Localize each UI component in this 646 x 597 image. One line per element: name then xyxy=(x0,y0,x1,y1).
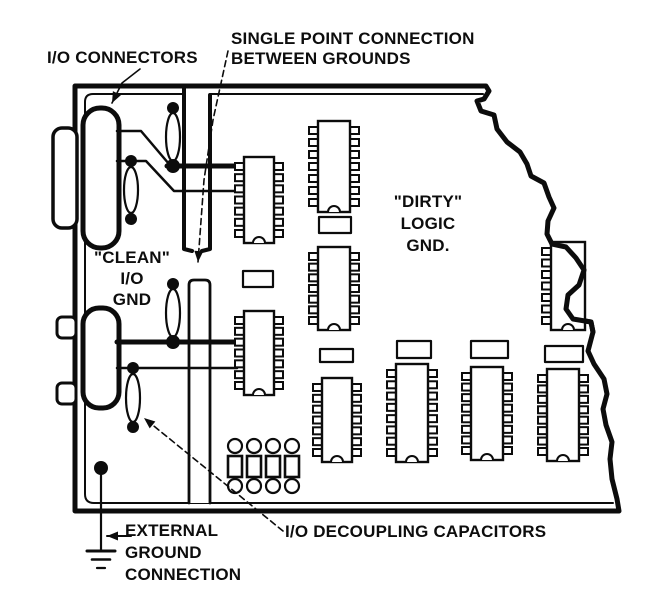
junction-dot xyxy=(166,335,180,349)
grounding-diagram: I/O CONNECTORS SINGLE POINT CONNECTION B… xyxy=(0,0,646,597)
passive-component xyxy=(243,271,273,287)
decoupling-capacitor xyxy=(247,439,261,493)
label-external-line3: CONNECTION xyxy=(125,564,241,586)
ic-logic-2 xyxy=(309,247,359,330)
io-connector-bottom-flange-upper xyxy=(57,317,76,338)
label-dirty-logic-gnd: "DIRTY" LOGIC GND. xyxy=(382,191,474,257)
label-dirty-line2: LOGIC xyxy=(382,213,474,235)
decoupling-capacitor xyxy=(228,439,242,493)
passive-component xyxy=(319,217,351,233)
label-io-connectors: I/O CONNECTORS xyxy=(47,48,198,68)
io-connector-top-flange xyxy=(53,128,77,228)
io-connector-top-body xyxy=(83,108,119,248)
label-external-line2: GROUND xyxy=(125,542,241,564)
junction-dot xyxy=(127,421,139,433)
ic-row-1 xyxy=(313,378,361,462)
io-capacitor-2 xyxy=(124,167,138,213)
bypass-capacitor xyxy=(471,341,508,358)
earth-ground-symbol xyxy=(87,551,115,568)
label-dirty-line3: GND. xyxy=(382,235,474,257)
label-clean-line1: "CLEAN" xyxy=(86,247,178,268)
label-single-point-line2: BETWEEN GROUNDS xyxy=(231,49,475,69)
io-connector-bottom-body xyxy=(83,308,119,408)
io-capacitor-1 xyxy=(166,113,180,161)
junction-dot xyxy=(125,155,137,167)
decoupling-capacitor xyxy=(266,439,280,493)
label-clean-io-gnd: "CLEAN" I/O GND xyxy=(86,247,178,310)
junction-dot xyxy=(166,159,180,173)
decoupling-capacitor xyxy=(285,439,299,493)
bypass-capacitor xyxy=(397,341,431,358)
ic-clean-2 xyxy=(235,311,283,395)
bypass-capacitor xyxy=(545,346,583,362)
label-single-point-line1: SINGLE POINT CONNECTION xyxy=(231,29,475,49)
ic-clean-1 xyxy=(235,157,283,243)
label-external-ground-connection: EXTERNAL GROUND CONNECTION xyxy=(125,520,241,586)
io-capacitor-4 xyxy=(126,374,140,422)
ground-slot-lower-bar xyxy=(189,280,210,503)
junction-dot xyxy=(127,362,139,374)
bypass-capacitor xyxy=(320,349,353,362)
label-clean-line3: GND xyxy=(86,289,178,310)
junction-dot xyxy=(125,213,137,225)
ic-logic-1 xyxy=(309,121,359,212)
label-dirty-line1: "DIRTY" xyxy=(382,191,474,213)
label-clean-line2: I/O xyxy=(86,268,178,289)
label-io-decoupling-capacitors: I/O DECOUPLING CAPACITORS xyxy=(285,522,546,542)
label-external-line1: EXTERNAL xyxy=(125,520,241,542)
label-single-point-connection: SINGLE POINT CONNECTION BETWEEN GROUNDS xyxy=(231,29,475,69)
io-connector-bottom-flange-lower xyxy=(57,383,76,404)
